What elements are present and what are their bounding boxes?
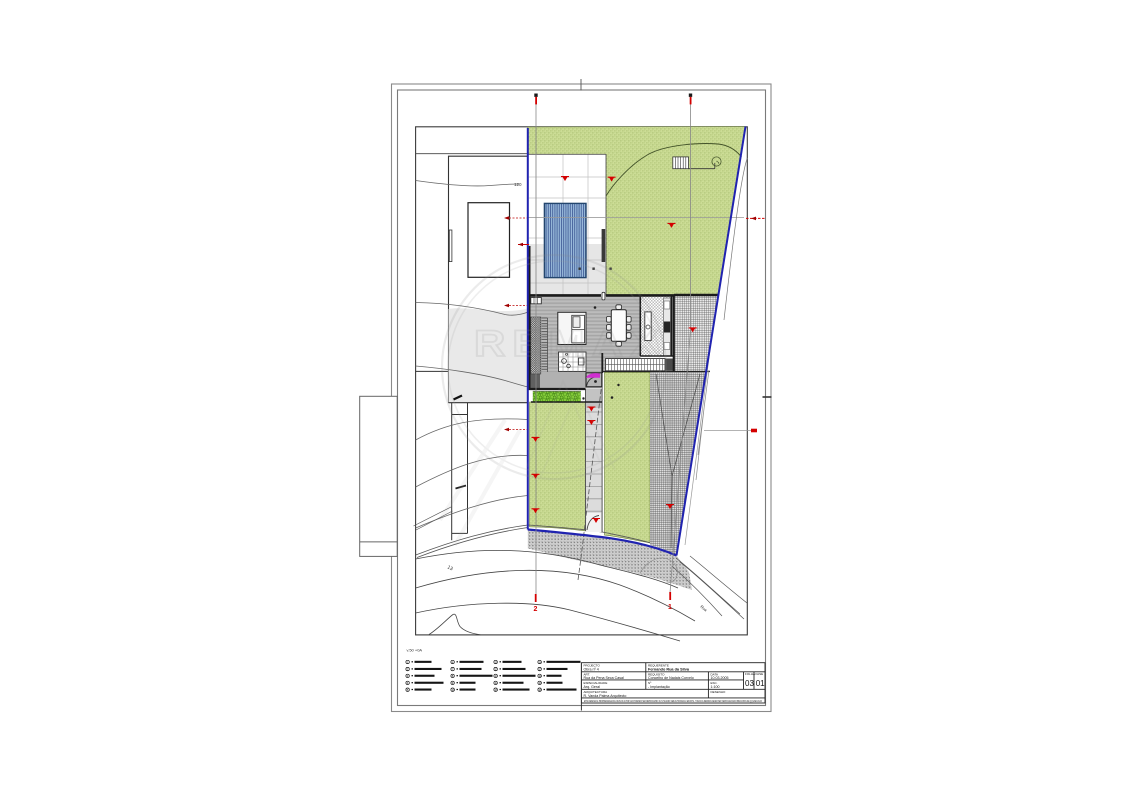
svg-text:03: 03 (745, 679, 754, 688)
svg-text:16: 16 (539, 660, 543, 664)
svg-text:Concelho de Nadais Corvelo: Concelho de Nadais Corvelo (648, 676, 694, 680)
svg-text:120: 120 (514, 182, 522, 187)
svg-text:10: 10 (452, 688, 456, 692)
svg-text:Obra nº 4: Obra nº 4 (584, 668, 599, 672)
svg-text:15: 15 (495, 688, 499, 692)
svg-text:2: 2 (534, 606, 538, 613)
svg-text:FOLHA: FOLHA (745, 672, 755, 676)
svg-text:14: 14 (495, 681, 499, 685)
svg-text:12: 12 (495, 667, 499, 671)
svg-text:13: 13 (495, 674, 499, 678)
svg-text:01: 01 (756, 679, 765, 688)
svg-text:FASE: FASE (756, 672, 764, 676)
svg-text:1: 1 (668, 604, 672, 611)
svg-text:ESTE DESENHO E PROPRIEDADE EXC: ESTE DESENHO E PROPRIEDADE EXCLUSIVA DO … (584, 699, 762, 703)
svg-text:19: 19 (539, 681, 543, 685)
svg-text:Fernando Rua da Silva: Fernando Rua da Silva (648, 668, 690, 672)
svg-text:20: 20 (539, 688, 543, 692)
svg-text:Rua da Pena Seca Casal: Rua da Pena Seca Casal (584, 676, 625, 680)
svg-text:1:100: 1:100 (711, 685, 720, 689)
svg-text:R. Vanda Palma Arquitecto: R. Vanda Palma Arquitecto (584, 694, 627, 698)
svg-text:- Implantação: - Implantação (648, 685, 670, 689)
svg-text:REMAX: REMAX (474, 323, 666, 364)
svg-text:11: 11 (495, 660, 498, 664)
svg-text:v.50 +0A: v.50 +0A (407, 648, 423, 653)
svg-text:Arq. Geral: Arq. Geral (584, 685, 601, 689)
svg-text:10.03.2005: 10.03.2005 (711, 676, 729, 680)
svg-text:DESENHO: DESENHO (711, 690, 727, 694)
svg-text:18: 18 (539, 674, 543, 678)
svg-text:17: 17 (539, 667, 543, 671)
